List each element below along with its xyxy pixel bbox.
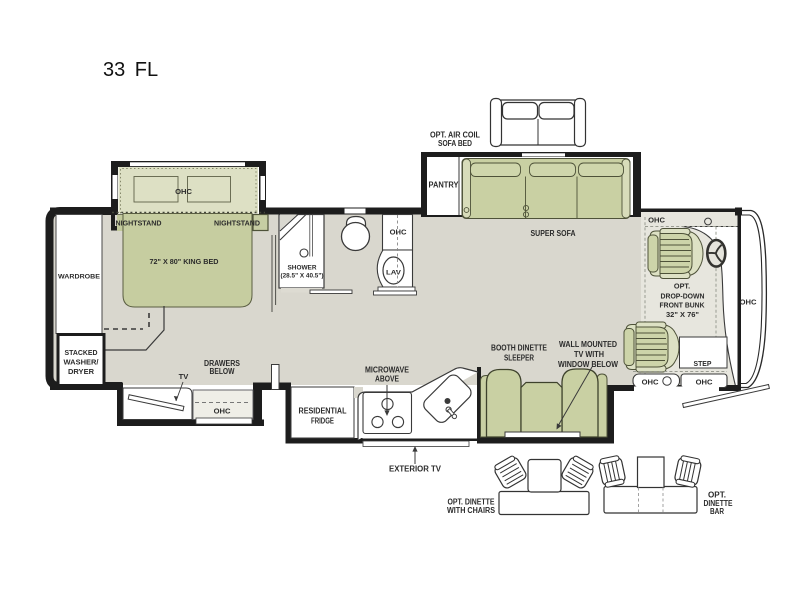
svg-text:OHC: OHC bbox=[740, 298, 757, 307]
svg-text:WALL MOUNTED: WALL MOUNTED bbox=[559, 340, 617, 349]
svg-text:TV WITH: TV WITH bbox=[574, 350, 604, 359]
svg-text:ABOVE: ABOVE bbox=[375, 375, 400, 384]
svg-text:PANTRY: PANTRY bbox=[429, 181, 460, 190]
svg-text:FRONT BUNK: FRONT BUNK bbox=[660, 301, 706, 310]
svg-text:OHC: OHC bbox=[390, 228, 407, 237]
svg-text:WASHER/: WASHER/ bbox=[64, 358, 100, 367]
svg-text:OHC: OHC bbox=[214, 407, 231, 416]
svg-text:MICROWAVE: MICROWAVE bbox=[365, 366, 410, 375]
svg-text:32" X 76": 32" X 76" bbox=[666, 310, 699, 319]
svg-text:STEP: STEP bbox=[694, 359, 712, 368]
svg-text:RESIDENTIAL: RESIDENTIAL bbox=[299, 407, 347, 416]
svg-text:WINDOW BELOW: WINDOW BELOW bbox=[558, 360, 618, 369]
svg-text:SUPER SOFA: SUPER SOFA bbox=[531, 229, 576, 238]
svg-text:SHOWER: SHOWER bbox=[288, 265, 317, 272]
svg-text:WITH CHAIRS: WITH CHAIRS bbox=[447, 506, 496, 515]
svg-text:DRYER: DRYER bbox=[68, 367, 94, 376]
svg-text:33 FL: 33 FL bbox=[103, 59, 158, 81]
svg-text:OPT.: OPT. bbox=[674, 282, 690, 291]
svg-text:NIGHTSTAND: NIGHTSTAND bbox=[214, 219, 260, 228]
svg-text:72" X 80" KING BED: 72" X 80" KING BED bbox=[150, 257, 219, 266]
svg-text:(28.5" X 40.5"): (28.5" X 40.5") bbox=[281, 273, 324, 280]
svg-text:OHC: OHC bbox=[648, 216, 665, 225]
svg-text:TV: TV bbox=[179, 372, 190, 381]
svg-text:BAR: BAR bbox=[710, 507, 724, 516]
svg-text:STACKED: STACKED bbox=[65, 348, 98, 357]
svg-text:NIGHTSTAND: NIGHTSTAND bbox=[116, 219, 162, 228]
svg-text:SOFA BED: SOFA BED bbox=[438, 139, 472, 148]
svg-text:WARDROBE: WARDROBE bbox=[58, 274, 100, 281]
svg-text:OHC: OHC bbox=[175, 187, 192, 196]
svg-text:LAV: LAV bbox=[386, 270, 402, 277]
svg-text:DROP-DOWN: DROP-DOWN bbox=[661, 291, 705, 300]
svg-text:EXTERIOR TV: EXTERIOR TV bbox=[389, 465, 442, 474]
svg-text:BELOW: BELOW bbox=[210, 367, 235, 376]
svg-text:OHC: OHC bbox=[696, 378, 713, 387]
svg-text:SLEEPER: SLEEPER bbox=[504, 354, 534, 363]
svg-text:FRIDGE: FRIDGE bbox=[311, 417, 334, 426]
svg-text:BOOTH DINETTE: BOOTH DINETTE bbox=[491, 344, 548, 353]
svg-text:OHC: OHC bbox=[642, 378, 659, 387]
